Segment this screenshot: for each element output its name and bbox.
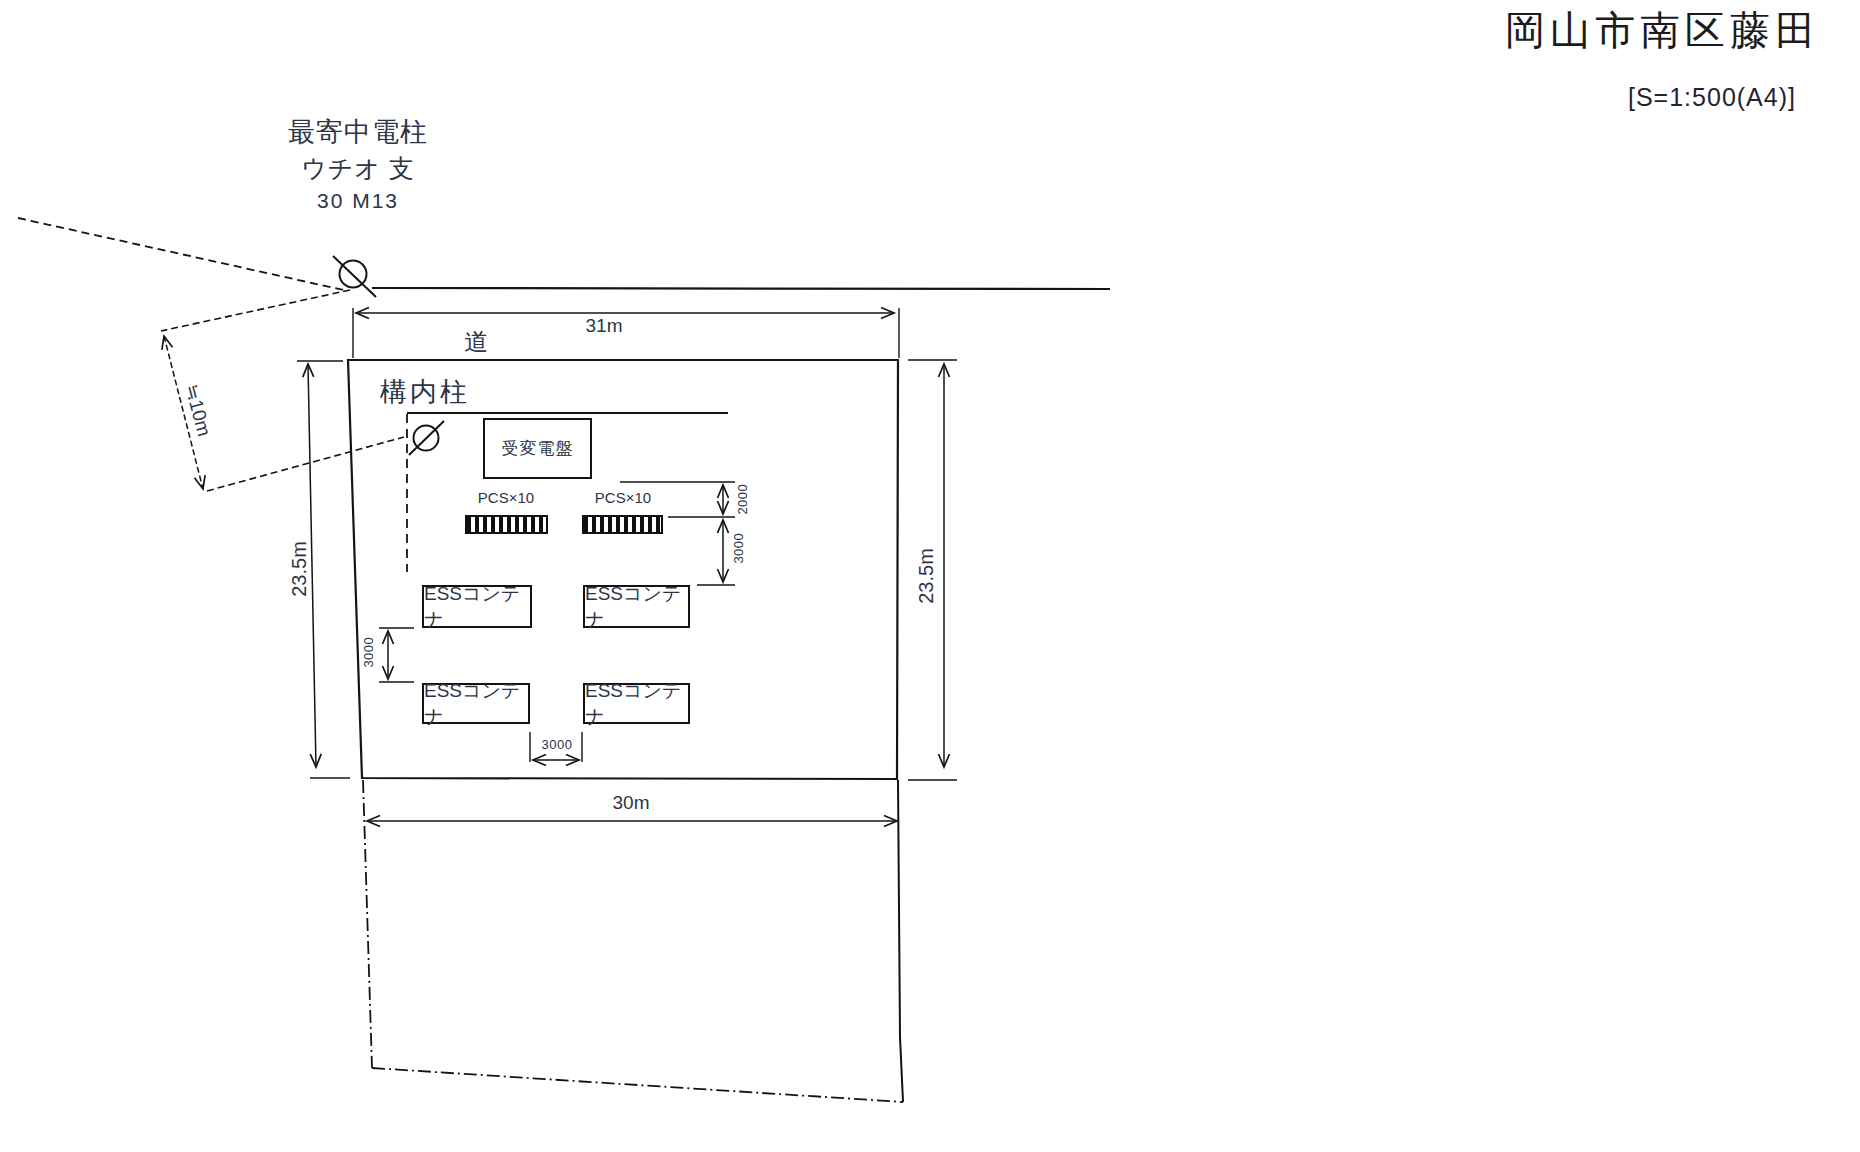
dimension-3000-left-lines [379,628,414,682]
ess-label: ESSコンテナ [585,581,688,633]
road-line [372,288,1110,289]
road-label: 道 [464,329,488,355]
dimension-31m-text: 31m [574,316,634,337]
dimension-23-5m-left-text: 23.5m [288,529,310,609]
substation-box: 受変電盤 [483,418,592,479]
ess-container-top-left: ESSコンテナ [422,585,532,628]
dimension-3000-left-text: 3000 [362,627,376,677]
onsite-pole-symbol [409,421,444,455]
pcs-left-label: PCS×10 [461,490,551,507]
ess-container-bottom-left: ESSコンテナ [422,683,530,724]
nearest-pole-label: 最寄中電柱 ウチオ 支 30 M13 [268,118,448,212]
scale-note: [S=1:500(A4)] [1628,84,1796,112]
site-plan-page: 岡山市南区藤田 [S=1:500(A4)] 最寄中電柱 ウチオ 支 30 M13… [0,0,1860,1152]
onsite-pole-label: 構内柱 [380,378,470,408]
drawing-title: 岡山市南区藤田 [1505,8,1820,52]
dimension-30m-text: 30m [601,793,661,814]
dimension-2000-text: 2000 [736,474,750,524]
pcs-array-left [465,515,548,534]
dimension-3000-bottom-text: 3000 [532,738,582,752]
nearest-pole-line1: 最寄中電柱 [268,118,448,148]
dimension-3000-right-text: 3000 [732,523,746,573]
pcs-right-label: PCS×10 [578,490,668,507]
ess-container-bottom-right: ESSコンテナ [583,683,690,724]
ess-label: ESSコンテナ [424,581,530,633]
lower-parcel-outline [363,780,903,1102]
ess-label: ESSコンテナ [585,678,688,730]
ess-label: ESSコンテナ [424,678,528,730]
overhead-wire-line [18,218,348,291]
substation-label: 受変電盤 [502,437,574,460]
ess-container-top-right: ESSコンテナ [583,585,690,628]
utility-pole-symbol [333,256,376,297]
nearest-pole-line3: 30 M13 [268,189,448,212]
nearest-pole-line2: ウチオ 支 [268,155,448,183]
pcs-array-right [582,515,663,534]
dimension-23-5m-right-text: 23.5m [915,536,937,616]
